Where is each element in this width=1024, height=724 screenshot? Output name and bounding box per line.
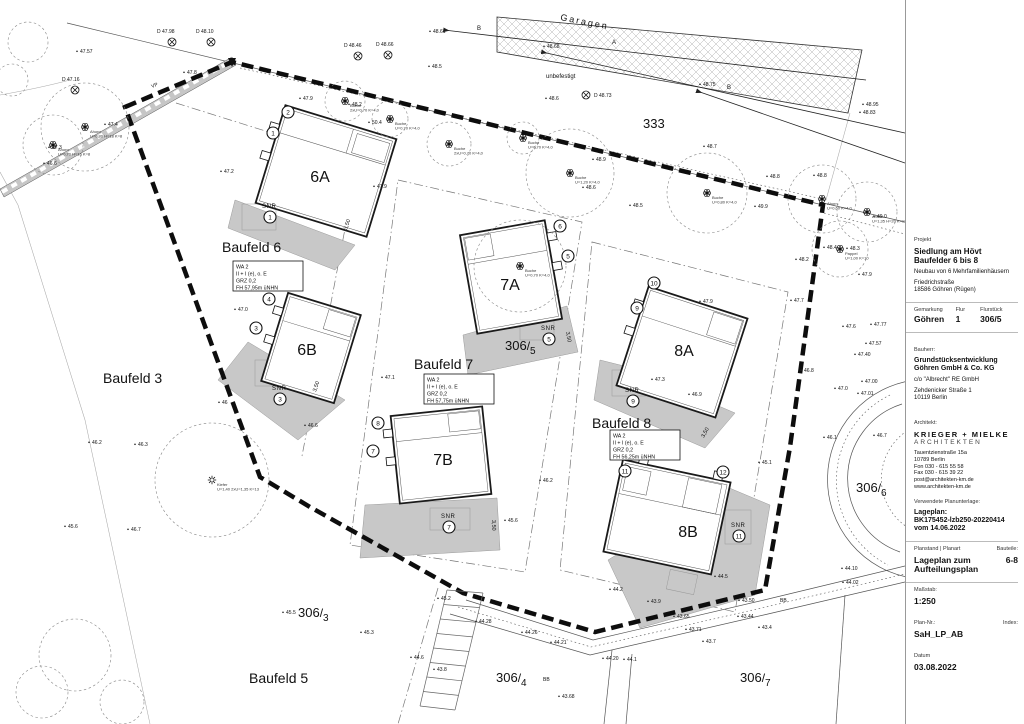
svg-text:U=0,70 K=4,0: U=0,70 K=4,0 <box>528 145 553 150</box>
spot-elevation: 47.2 <box>220 169 234 175</box>
svg-text:49.9: 49.9 <box>758 204 768 210</box>
parcel-number: 306/6 <box>856 480 887 499</box>
svg-text:43.65: 43.65 <box>677 614 690 620</box>
project-description: Neubau von 6 Mehrfamilienhäusern <box>914 269 1018 276</box>
svg-text:WA 2: WA 2 <box>427 378 440 384</box>
baufeld-label: Baufeld 3 <box>103 370 162 386</box>
survey-point: D 48.46 <box>344 43 362 60</box>
svg-text:47.9: 47.9 <box>862 272 872 278</box>
spot-elevation: 47.6 <box>842 324 856 330</box>
svg-text:47.4: 47.4 <box>108 122 118 128</box>
annotation: B <box>727 85 731 91</box>
architect-address: Tauentzienstraße 15a 10789 Berlin Fon 03… <box>914 450 1018 491</box>
spot-elevation: 47.01 <box>857 391 874 397</box>
house-number-1: 1 <box>267 127 279 139</box>
svg-text:D 48.73: D 48.73 <box>594 93 612 99</box>
site-plan-page: AhornU=0,80 H=18 K=8AhornU=0,70 H=16 K=8… <box>0 0 1024 724</box>
spot-elevation: 48.6 <box>582 185 596 191</box>
spot-elevation: 47.7 <box>790 298 804 304</box>
house-number-4: 4 <box>263 293 275 305</box>
svg-text:4: 4 <box>267 296 271 303</box>
svg-text:306/4: 306/4 <box>496 670 527 689</box>
spot-elevation: 44.10 <box>841 566 858 572</box>
spot-elevation: 47.57 <box>76 49 93 55</box>
svg-text:9: 9 <box>631 398 635 405</box>
svg-text:D 48.10: D 48.10 <box>196 29 214 35</box>
spot-elevation: 46 <box>218 400 228 406</box>
house-number-11: 11 <box>619 465 631 477</box>
survey-point: D 47.16 <box>62 77 80 94</box>
spot-elevation: 48.7 <box>703 144 717 150</box>
svg-text:45.6: 45.6 <box>508 518 518 524</box>
svg-text:GRZ 0,2: GRZ 0,2 <box>613 448 633 454</box>
svg-text:SNR: SNR <box>541 326 556 332</box>
svg-text:7: 7 <box>371 448 375 455</box>
spot-elevation: 48.95 <box>862 102 879 108</box>
svg-text:D 48.46: D 48.46 <box>344 43 362 49</box>
annotation: BB <box>543 677 550 683</box>
spot-elevation: 44.26 <box>521 630 538 636</box>
spot-elevation: 46.3 <box>134 442 148 448</box>
spot-elevation: 47.77 <box>870 322 887 328</box>
spot-elevation: 46.7 <box>127 527 141 533</box>
house-number-2: 2 <box>282 106 294 118</box>
svg-text:3: 3 <box>254 325 258 332</box>
svg-text:SNR: SNR <box>262 204 277 210</box>
spot-elevation: 48.5 <box>428 64 442 70</box>
spot-elevation: 45.2 <box>437 596 451 602</box>
svg-text:48.7: 48.7 <box>707 144 717 150</box>
svg-text:44.02: 44.02 <box>846 580 859 586</box>
svg-text:43.8: 43.8 <box>437 667 447 673</box>
svg-text:48.83: 48.83 <box>863 110 876 116</box>
spot-elevation: 44.6 <box>410 655 424 661</box>
svg-text:12: 12 <box>719 469 727 476</box>
architect-email[interactable]: post@architekten-km.de <box>914 477 1018 484</box>
svg-text:U=0,70 K=4,0: U=0,70 K=4,0 <box>395 126 420 131</box>
svg-text:48.75: 48.75 <box>703 82 716 88</box>
svg-text:306/6: 306/6 <box>856 480 887 499</box>
survey-point: D 48.73 <box>582 91 612 99</box>
road-band <box>0 57 236 197</box>
baufeld-label: Baufeld 8 <box>592 415 651 431</box>
svg-text:47.57: 47.57 <box>869 341 882 347</box>
svg-text:45.3: 45.3 <box>364 630 374 636</box>
spec-box: WA 2II + I (e), o. EGRZ 0,2FH 56,25m üNH… <box>610 430 680 461</box>
svg-text:43.4: 43.4 <box>762 625 772 631</box>
svg-text:U=1,20 K=4,0: U=1,20 K=4,0 <box>575 180 600 185</box>
date-value: 03.08.2022 <box>914 663 1018 672</box>
svg-text:48.61: 48.61 <box>433 29 446 35</box>
svg-text:47.00: 47.00 <box>865 379 878 385</box>
parcel-number: 333 <box>643 116 665 131</box>
svg-text:47.40: 47.40 <box>858 352 871 358</box>
svg-text:47.9: 47.9 <box>703 299 713 305</box>
shrub-crown <box>16 666 68 718</box>
spot-elevation: 47.00 <box>861 379 878 385</box>
svg-text:47.9: 47.9 <box>377 184 387 190</box>
spot-elevation: 47.9 <box>858 272 872 278</box>
spot-elevation: 47.9 <box>299 96 313 102</box>
svg-text:II + I (e), o. E: II + I (e), o. E <box>427 385 458 391</box>
house-number-3: 3 <box>250 322 262 334</box>
site-plan-canvas: AhornU=0,80 H=18 K=8AhornU=0,70 H=16 K=8… <box>0 0 905 724</box>
svg-text:SNR: SNR <box>272 386 287 392</box>
svg-text:48.8: 48.8 <box>817 173 827 179</box>
house-number-10: 10 <box>648 277 660 289</box>
plan-state-labels: Planstand | Planart Bauteile: <box>914 546 1018 552</box>
survey-point: D 48.66 <box>376 42 394 59</box>
svg-text:2: 2 <box>286 109 290 116</box>
svg-text:46.6: 46.6 <box>308 423 318 429</box>
svg-text:2xU=0,70 K=4,0: 2xU=0,70 K=4,0 <box>454 151 484 156</box>
client-label: Bauherr: <box>914 347 1018 353</box>
annotation: VP <box>151 82 160 90</box>
svg-text:333: 333 <box>643 116 665 131</box>
spec-box: WA 2II + I (e), o. EGRZ 0,2FH 57,75m üNH… <box>424 374 494 405</box>
house-number-8: 8 <box>372 417 384 429</box>
svg-text:48.9: 48.9 <box>596 157 606 163</box>
stair-path <box>420 590 483 710</box>
parcel-number-layer: 333306/5306/6306/3306/4306/7 <box>298 116 887 689</box>
svg-text:47.0: 47.0 <box>238 307 248 313</box>
svg-text:47.8: 47.8 <box>187 70 197 76</box>
tree-kiefer: KieferU=1,40 2xU=1,35 K=13 <box>155 423 269 537</box>
spot-elevation: 43.68 <box>558 694 575 700</box>
svg-text:43.7: 43.7 <box>706 639 716 645</box>
spot-elevation: 47.8 <box>183 70 197 76</box>
building-label-6A: 6A <box>310 169 330 186</box>
client-city: 10119 Berlin <box>914 395 1018 402</box>
architect-name: KRIEGER + MIELKE <box>914 430 1018 439</box>
svg-text:GRZ 0,2: GRZ 0,2 <box>427 392 447 398</box>
building-label-8B: 8B <box>678 524 698 541</box>
svg-text:46.2: 46.2 <box>543 478 553 484</box>
cadastre-values: Göhren 1 306/5 <box>914 315 1018 324</box>
project-title: Siedlung am Hövt Baufelder 6 bis 8 <box>914 247 1018 265</box>
tree-ahorn: AhornU=1,35 H=20 K=12 <box>837 182 905 242</box>
svg-text:44.20: 44.20 <box>606 656 619 662</box>
architect-website[interactable]: www.architekten-km.de <box>914 484 1018 491</box>
svg-text:U=0,70 K=4,0: U=0,70 K=4,0 <box>525 273 550 278</box>
spot-elevation: 48.9 <box>592 157 606 163</box>
spot-elevation: 43.7 <box>702 639 716 645</box>
house-number-9: 9 <box>631 302 643 314</box>
spot-elevation: 45.6 <box>504 518 518 524</box>
spot-elevation: 43.8 <box>433 667 447 673</box>
svg-text:D 48.66: D 48.66 <box>376 42 394 48</box>
svg-text:43.50: 43.50 <box>742 598 755 604</box>
svg-text:45.5: 45.5 <box>286 610 296 616</box>
dimension-label: 3,50 <box>490 520 496 531</box>
garage-area <box>444 17 905 163</box>
spot-elevation: 48.83 <box>859 110 876 116</box>
svg-text:D 47.16: D 47.16 <box>62 77 80 83</box>
house-number-5: 5 <box>562 250 574 262</box>
spot-elevation: 48.2 <box>795 257 809 263</box>
spot-elevation: 43.71 <box>685 627 702 633</box>
svg-text:6: 6 <box>558 223 562 230</box>
svg-text:47.77: 47.77 <box>874 322 887 328</box>
svg-text:44.1: 44.1 <box>627 657 637 663</box>
shrub-crown <box>39 619 111 691</box>
svg-text:GRZ 0,2: GRZ 0,2 <box>236 279 256 285</box>
svg-text:U=1,00 K=10: U=1,00 K=10 <box>845 256 869 261</box>
plan-component: 6-8 <box>1006 556 1018 574</box>
spot-elevation: 48.8 <box>813 173 827 179</box>
svg-text:U=0,80 H=18 K=8: U=0,80 H=18 K=8 <box>90 134 123 139</box>
svg-text:48.3: 48.3 <box>850 246 860 252</box>
svg-text:48.2: 48.2 <box>352 102 362 108</box>
plan-title: Lageplan zum Aufteilungsplan <box>914 556 978 574</box>
cadastre-labels: Gemarkung Flur Flurstück <box>914 307 1018 313</box>
spot-elevation: 45.1 <box>758 460 772 466</box>
svg-text:47.3: 47.3 <box>52 145 62 151</box>
svg-text:43.71: 43.71 <box>689 627 702 633</box>
svg-text:47.9: 47.9 <box>303 96 313 102</box>
spot-elevation: 45.6 <box>64 524 78 530</box>
svg-text:43.44: 43.44 <box>741 614 754 620</box>
client-street: Zehdenicker Straße 1 <box>914 388 1018 395</box>
svg-text:WA 2: WA 2 <box>613 434 626 440</box>
spot-elevation: 50.4 <box>368 120 382 126</box>
project-city: 18586 Göhren (Rügen) <box>914 287 1018 294</box>
survey-point: D 47.98 <box>157 29 176 46</box>
svg-text:11: 11 <box>736 533 743 540</box>
svg-text:48.8: 48.8 <box>770 174 780 180</box>
svg-text:46: 46 <box>222 400 228 406</box>
svg-text:5: 5 <box>547 336 551 343</box>
spot-elevation: 48.8 <box>766 174 780 180</box>
svg-text:44.6: 44.6 <box>414 655 424 661</box>
spot-elevation: 47.1 <box>381 375 395 381</box>
svg-text:44.28: 44.28 <box>479 619 492 625</box>
svg-text:47.3: 47.3 <box>655 377 665 383</box>
svg-text:10: 10 <box>650 280 658 287</box>
plan-basis: Lageplan: BK175452-lzb250-20220414 vom 1… <box>914 509 1018 533</box>
svg-text:II + I (e), o. E: II + I (e), o. E <box>613 441 644 447</box>
svg-text:FH 56,25m üNHN: FH 56,25m üNHN <box>613 455 655 461</box>
svg-text:47.1: 47.1 <box>385 375 395 381</box>
client-co: c/o "Albrecht" RE GmbH <box>914 377 1018 384</box>
baufeld-label: Baufeld 7 <box>414 356 473 372</box>
spot-elevation: 46.2 <box>539 478 553 484</box>
tree-buche: Buche2xU=0,70 K=4,0 <box>427 122 484 166</box>
svg-text:44.5: 44.5 <box>718 574 728 580</box>
svg-text:44.2: 44.2 <box>613 587 623 593</box>
svg-text:U=0,80 K=4,0: U=0,80 K=4,0 <box>712 200 737 205</box>
svg-text:44.21: 44.21 <box>554 640 567 646</box>
svg-text:48.5: 48.5 <box>432 64 442 70</box>
svg-text:45.6: 45.6 <box>68 524 78 530</box>
svg-text:46.3: 46.3 <box>138 442 148 448</box>
shrub-crown <box>100 680 144 724</box>
svg-text:46.6: 46.6 <box>47 161 57 167</box>
svg-text:46.9: 46.9 <box>692 392 702 398</box>
spot-elevation: 43.4 <box>758 625 772 631</box>
spot-elevation: 47.57 <box>865 341 882 347</box>
svg-text:3: 3 <box>278 396 282 403</box>
spot-elevation: 48.5 <box>629 203 643 209</box>
spot-elevation: 43.44 <box>737 614 754 620</box>
svg-text:46.2: 46.2 <box>92 440 102 446</box>
spot-elevation: 46.1 <box>823 435 837 441</box>
parcel-number: 306/7 <box>740 670 771 689</box>
svg-text:47.7: 47.7 <box>794 298 804 304</box>
parcel-number: 306/4 <box>496 670 527 689</box>
spot-elevation: 47.4 <box>104 122 118 128</box>
spot-elevation: 47.40 <box>854 352 871 358</box>
svg-text:306/7: 306/7 <box>740 670 771 689</box>
building-label-7B: 7B <box>433 452 453 469</box>
svg-text:SNR: SNR <box>441 514 456 520</box>
svg-text:46.1: 46.1 <box>827 435 837 441</box>
spot-elevation: 44.2 <box>609 587 623 593</box>
architect-label: Architekt: <box>914 420 1018 426</box>
spot-elevation: 47.3 <box>48 145 62 151</box>
plan-no-labels: Plan-Nr.: Index: <box>914 620 1018 626</box>
house-number-6: 6 <box>554 220 566 232</box>
building-label-6B: 6B <box>297 342 317 359</box>
parcel-number: 306/3 <box>298 605 329 624</box>
scale-value: 1:250 <box>914 597 1018 606</box>
svg-text:43.9: 43.9 <box>651 599 661 605</box>
annotation: unbefestigt <box>546 74 576 80</box>
svg-text:8: 8 <box>376 420 380 427</box>
svg-text:FH 57,95m üNHN: FH 57,95m üNHN <box>236 286 278 292</box>
spot-elevation: 45.3 <box>360 630 374 636</box>
svg-text:WA 2: WA 2 <box>236 265 249 271</box>
spot-elevation: 47.0 <box>834 386 848 392</box>
tree-buche: BucheU=0,80 K=4,0 <box>667 153 747 233</box>
annotation: A <box>612 40 616 46</box>
baufeld-label-layer: Baufeld 6Baufeld 7Baufeld 8Baufeld 3Bauf… <box>103 239 651 686</box>
annotation: BB <box>780 598 787 604</box>
spot-elevation: 46.7 <box>873 433 887 439</box>
building-label-8A: 8A <box>674 343 694 360</box>
svg-text:D 47.98: D 47.98 <box>157 29 175 35</box>
annotation: B <box>477 26 481 32</box>
svg-text:U=1,40 2xU=1,35 K=13: U=1,40 2xU=1,35 K=13 <box>217 487 260 492</box>
svg-text:47.6: 47.6 <box>846 324 856 330</box>
spot-elevation: 47.0 <box>234 307 248 313</box>
spot-elevation: 48.61 <box>429 29 446 35</box>
svg-text:47.57: 47.57 <box>80 49 93 55</box>
house-number-12: 12 <box>717 466 729 478</box>
svg-text:1: 1 <box>268 214 272 221</box>
baufeld-label: Baufeld 5 <box>249 670 308 686</box>
svg-text:48.68: 48.68 <box>547 44 560 50</box>
shrub-crown <box>8 22 48 62</box>
spot-elevation: 48.6 <box>545 96 559 102</box>
spot-elevation: 49.9 <box>754 204 768 210</box>
svg-text:SNR: SNR <box>625 388 640 394</box>
spot-elevation: 44.20 <box>602 656 619 662</box>
svg-text:48.6: 48.6 <box>586 185 596 191</box>
spot-elevation: 48.4 <box>823 245 837 251</box>
svg-text:46.8: 46.8 <box>804 368 814 374</box>
shrub-crown <box>0 64 28 96</box>
svg-text:306/3: 306/3 <box>298 605 329 624</box>
svg-text:45.2: 45.2 <box>441 596 451 602</box>
svg-text:50.4: 50.4 <box>372 120 382 126</box>
svg-text:48.95: 48.95 <box>866 102 879 108</box>
svg-text:11: 11 <box>622 468 629 475</box>
architect-subtitle: ARCHITEKTEN <box>914 439 1018 446</box>
svg-text:47.01: 47.01 <box>861 391 874 397</box>
svg-text:46.7: 46.7 <box>877 433 887 439</box>
spec-box: WA 2II + I (e), o. EGRZ 0,2FH 57,95m üNH… <box>233 261 303 292</box>
title-block: Projekt Siedlung am Hövt Baufelder 6 bis… <box>905 0 1024 724</box>
svg-text:49.0: 49.0 <box>877 214 887 220</box>
svg-text:45.1: 45.1 <box>762 460 772 466</box>
svg-text:II + I (e), o. E: II + I (e), o. E <box>236 272 267 278</box>
plan-title-row: Lageplan zum Aufteilungsplan 6-8 <box>914 556 1018 574</box>
svg-text:SNR: SNR <box>731 523 746 529</box>
svg-text:46.7: 46.7 <box>131 527 141 533</box>
svg-text:47.2: 47.2 <box>224 169 234 175</box>
plan-no-value: SaH_LP_AB <box>914 630 1018 639</box>
project-label: Projekt <box>914 237 1018 243</box>
svg-text:47.0: 47.0 <box>838 386 848 392</box>
building-label-7A: 7A <box>500 277 520 294</box>
svg-text:7: 7 <box>447 524 451 531</box>
svg-text:48.5: 48.5 <box>633 203 643 209</box>
svg-text:U=0,60 K=4,0: U=0,60 K=4,0 <box>827 206 852 211</box>
svg-text:9: 9 <box>635 305 639 312</box>
plan-basis-label: Verwendete Planunterlage: <box>914 499 1018 505</box>
svg-text:1: 1 <box>271 130 275 137</box>
house-number-7: 7 <box>367 445 379 457</box>
svg-text:5: 5 <box>566 253 570 260</box>
scale-label: Maßstab: <box>914 587 1018 593</box>
spot-elevation: 44.1 <box>623 657 637 663</box>
svg-text:48.2: 48.2 <box>799 257 809 263</box>
project-street: Friedrichstraße <box>914 280 1018 287</box>
svg-text:43.68: 43.68 <box>562 694 575 700</box>
client-name: Grundstücksentwicklung Göhren GmbH & Co.… <box>914 357 1018 373</box>
spot-elevation: 44.21 <box>550 640 567 646</box>
svg-text:44.26: 44.26 <box>525 630 538 636</box>
baufeld-label: Baufeld 6 <box>222 239 281 255</box>
svg-text:FH 57,75m üNHN: FH 57,75m üNHN <box>427 399 469 405</box>
date-label: Datum <box>914 653 1018 659</box>
svg-text:U=0,70 H=16 K=8: U=0,70 H=16 K=8 <box>58 152 91 157</box>
survey-point: D 48.10 <box>196 29 215 46</box>
svg-text:44.10: 44.10 <box>845 566 858 572</box>
svg-text:48.6: 48.6 <box>549 96 559 102</box>
spot-elevation: 45.5 <box>282 610 296 616</box>
svg-text:48.4: 48.4 <box>827 245 837 251</box>
